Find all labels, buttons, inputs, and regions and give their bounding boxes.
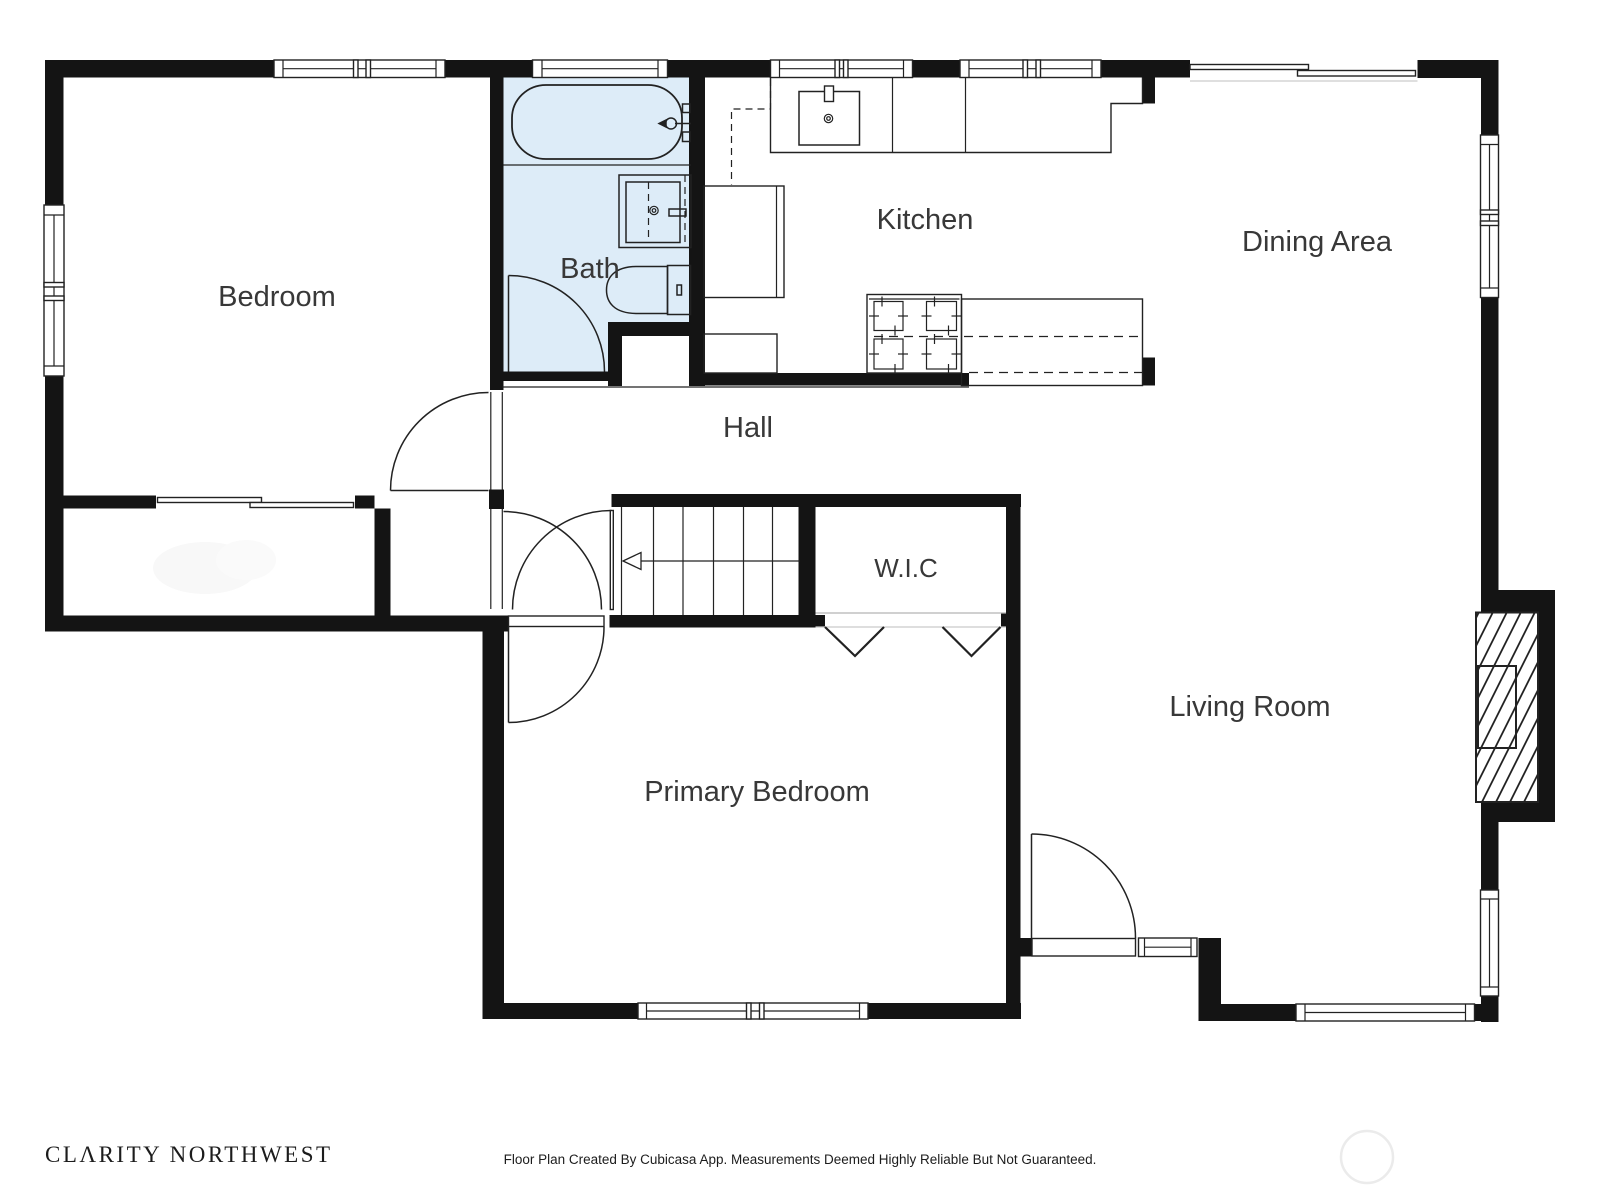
svg-text:W.I.C: W.I.C xyxy=(874,553,938,583)
svg-text:Bath: Bath xyxy=(560,253,620,285)
svg-text:Bedroom: Bedroom xyxy=(218,281,336,313)
svg-text:Floor Plan Created By Cubicasa: Floor Plan Created By Cubicasa App. Meas… xyxy=(504,1152,1097,1167)
svg-text:CLΛRITY ΝORTHWEST: CLΛRITY ΝORTHWEST xyxy=(45,1142,333,1167)
svg-text:Hall: Hall xyxy=(723,412,773,444)
svg-text:Primary Bedroom: Primary Bedroom xyxy=(644,776,870,808)
svg-text:Kitchen: Kitchen xyxy=(877,204,974,236)
svg-text:Dining Area: Dining Area xyxy=(1242,226,1393,258)
svg-text:Living Room: Living Room xyxy=(1169,691,1330,723)
